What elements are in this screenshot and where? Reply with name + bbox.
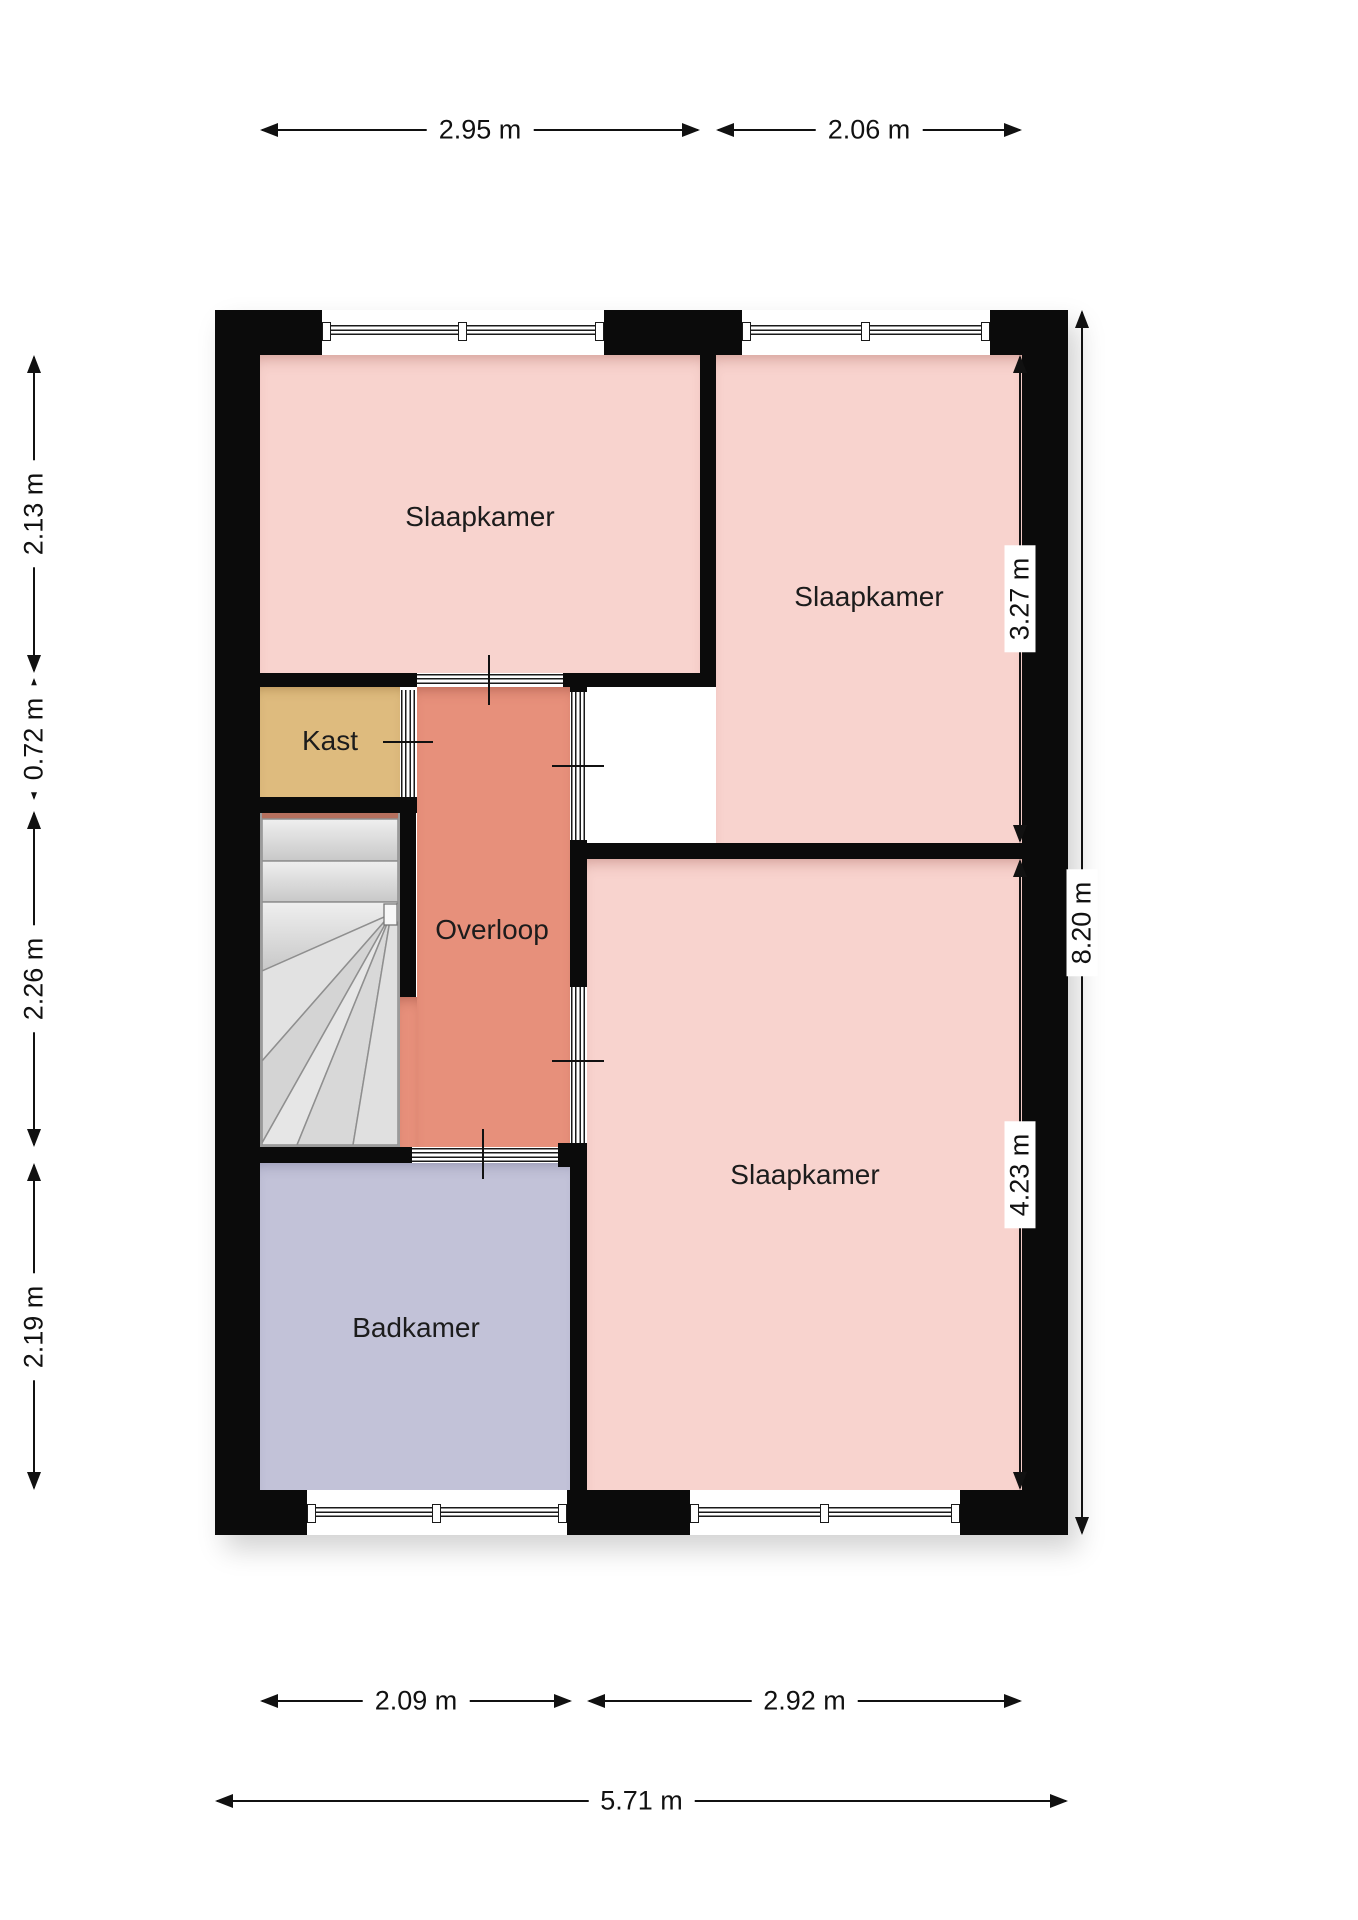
dimension-right-total-height: 8.20 m xyxy=(1069,310,1095,1535)
window-top-right-bedroom xyxy=(742,310,990,355)
outer-wall-top-pillar xyxy=(604,310,742,355)
wall-below-stairs xyxy=(260,1147,412,1163)
dimension-value: 2.95 m xyxy=(427,115,534,146)
dimension-value: 2.13 m xyxy=(19,461,50,568)
window-badkamer xyxy=(307,1490,567,1535)
dimension-value: 5.71 m xyxy=(588,1786,695,1817)
arrowhead-right-icon xyxy=(554,1694,572,1708)
arrowhead-up-icon xyxy=(1013,859,1027,877)
window-mullion xyxy=(307,1504,316,1523)
wall-between-right-bedrooms xyxy=(587,843,1022,859)
window-mullion xyxy=(951,1504,960,1523)
dimension-top-bedroom-tl-width: 2.95 m xyxy=(260,117,700,143)
door-leaf xyxy=(412,1148,558,1162)
dimension-left-bedroom-tl-height: 2.13 m xyxy=(21,355,47,673)
door-leaf xyxy=(401,690,416,797)
door-overloop-tl-tick xyxy=(488,655,490,705)
dimension-value: 2.92 m xyxy=(751,1686,858,1717)
arrowhead-up-icon xyxy=(1013,355,1027,373)
wall-overloop-right-middle xyxy=(570,840,587,987)
wall-overloop-right-bottom xyxy=(570,1143,587,1490)
arrowhead-right-icon xyxy=(1004,1694,1022,1708)
floorplan-canvas: Slaapkamer Slaapkamer Slaapkamer Kast Ov… xyxy=(0,0,1358,1920)
dimension-right-bedroom-tr-height: 3.27 m xyxy=(1007,355,1033,843)
arrowhead-up-icon xyxy=(27,1163,41,1181)
dimension-left-kast-height: 0.72 m xyxy=(21,678,47,800)
dimension-value: 0.72 m xyxy=(19,686,50,793)
arrowhead-up-icon xyxy=(27,355,41,373)
arrowhead-down-icon xyxy=(1013,1472,1027,1490)
dimension-value: 4.23 m xyxy=(1005,1121,1036,1228)
window-mullion xyxy=(981,322,990,341)
dimension-value: 2.19 m xyxy=(19,1273,50,1380)
dimension-right-bedroom-br-height: 4.23 m xyxy=(1007,859,1033,1490)
dimension-bottom-badkamer-width: 2.09 m xyxy=(260,1688,572,1714)
dimension-bottom-bedroom-br-width: 2.92 m xyxy=(587,1688,1022,1714)
wall-stairs-right xyxy=(400,811,416,997)
arrowhead-right-icon xyxy=(682,123,700,137)
dimension-left-stairs-height: 2.26 m xyxy=(21,811,47,1147)
arrowhead-down-icon xyxy=(27,1129,41,1147)
outer-wall-bottom-corner-left xyxy=(215,1490,307,1535)
door-overloop-to-bedroom-tl xyxy=(417,673,563,687)
dimension-left-badkamer-height: 2.19 m xyxy=(21,1163,47,1490)
arrowhead-right-icon xyxy=(1004,123,1022,137)
dimension-bottom-total-width: 5.71 m xyxy=(215,1788,1068,1814)
room-label-badkamer: Badkamer xyxy=(352,1312,480,1344)
arrowhead-right-icon xyxy=(1050,1794,1068,1808)
outer-wall-bottom-middle xyxy=(567,1490,690,1535)
arrowhead-up-icon xyxy=(27,811,41,829)
staircase xyxy=(260,811,400,1147)
room-label-kast: Kast xyxy=(302,725,358,757)
arrowhead-left-icon xyxy=(260,1694,278,1708)
arrowhead-left-icon xyxy=(716,123,734,137)
outer-wall-top-corner-left xyxy=(215,310,322,355)
outer-wall-left xyxy=(215,310,260,1535)
wall-badkamer-door-corner xyxy=(558,1143,587,1167)
dimension-value: 3.27 m xyxy=(1005,546,1036,653)
window-top-left-bedroom xyxy=(322,310,604,355)
door-overloop-to-bedroom-br xyxy=(570,987,587,1143)
arrowhead-left-icon xyxy=(587,1694,605,1708)
room-overloop-stair-opening xyxy=(400,997,417,1147)
door-leaf xyxy=(571,987,586,1143)
window-mullion xyxy=(690,1504,699,1523)
window-mullion xyxy=(742,322,751,341)
door-kast-tick xyxy=(383,741,433,743)
wall-below-kast xyxy=(260,797,417,813)
wall-below-bedroom-tl-left xyxy=(260,673,417,687)
window-bottom-right-bedroom xyxy=(690,1490,960,1535)
dimension-value: 2.26 m xyxy=(19,926,50,1033)
dimension-value: 8.20 m xyxy=(1067,869,1098,976)
window-mullion xyxy=(432,1504,441,1523)
door-badkamer-tick xyxy=(482,1129,484,1179)
arrowhead-down-icon xyxy=(27,1472,41,1490)
wall-overloop-right-top xyxy=(570,673,587,692)
arrowhead-down-icon xyxy=(1075,1517,1089,1535)
outer-wall-bottom-corner-right xyxy=(960,1490,1068,1535)
window-mullion xyxy=(595,322,604,341)
room-label-overloop: Overloop xyxy=(435,914,549,946)
door-leaf xyxy=(417,674,563,686)
wall-divider-top-bedrooms xyxy=(700,355,716,687)
arrowhead-up-icon xyxy=(1075,310,1089,328)
window-mullion xyxy=(820,1504,829,1523)
room-label-slaapkamer-top-left: Slaapkamer xyxy=(405,501,554,533)
room-label-slaapkamer-top-right: Slaapkamer xyxy=(794,581,943,613)
staircase-drawing xyxy=(260,811,400,1147)
arrowhead-left-icon xyxy=(260,123,278,137)
window-mullion xyxy=(861,322,870,341)
door-badkamer xyxy=(412,1147,558,1163)
dimension-top-bedroom-tr-width: 2.06 m xyxy=(716,117,1022,143)
arrowhead-left-icon xyxy=(215,1794,233,1808)
arrowhead-down-icon xyxy=(1013,825,1027,843)
window-mullion xyxy=(322,322,331,341)
window-mullion xyxy=(458,322,467,341)
room-label-slaapkamer-bottom-right: Slaapkamer xyxy=(730,1159,879,1191)
outer-wall-top-corner-right xyxy=(990,310,1068,355)
door-kast xyxy=(400,690,417,797)
dimension-value: 2.09 m xyxy=(363,1686,470,1717)
arrowhead-down-icon xyxy=(27,655,41,673)
door-overloop-br-tick xyxy=(552,1060,604,1062)
window-mullion xyxy=(558,1504,567,1523)
dimension-value: 2.06 m xyxy=(816,115,923,146)
door-overloop-tr-tick xyxy=(552,765,604,767)
